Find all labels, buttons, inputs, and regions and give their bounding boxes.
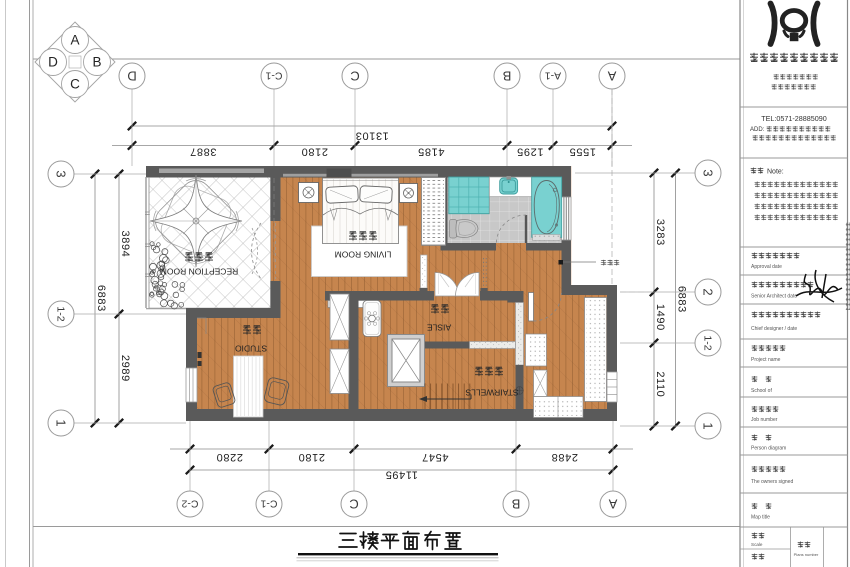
- svg-text:2280: 2280: [216, 451, 243, 463]
- svg-text:A: A: [607, 69, 616, 84]
- svg-text:C: C: [349, 497, 358, 512]
- svg-text:C: C: [70, 77, 80, 92]
- svg-text:2488: 2488: [551, 451, 578, 463]
- svg-text:B: B: [503, 69, 512, 84]
- svg-text:A: A: [70, 33, 79, 48]
- svg-text:2180: 2180: [298, 451, 325, 463]
- svg-text:RECEPTION ROOM: RECEPTION ROOM: [160, 267, 238, 277]
- svg-text:1: 1: [701, 422, 716, 429]
- svg-text:4547: 4547: [422, 451, 449, 463]
- svg-text:1-2: 1-2: [54, 306, 66, 321]
- svg-text:Person diagram: Person diagram: [751, 446, 786, 452]
- svg-text:STAIRWELLS: STAIRWELLS: [465, 388, 518, 398]
- svg-text:3: 3: [54, 170, 69, 177]
- svg-text:Map title: Map title: [751, 515, 770, 521]
- svg-text:C: C: [350, 69, 359, 84]
- svg-text:D: D: [48, 55, 58, 70]
- svg-text:Job number: Job number: [751, 417, 778, 423]
- svg-text:Approval date: Approval date: [751, 264, 782, 270]
- svg-text:Senior Architect date: Senior Architect date: [751, 294, 797, 300]
- svg-text:2: 2: [701, 288, 716, 295]
- svg-text:2989: 2989: [119, 355, 131, 382]
- svg-text:Chief designer / date: Chief designer / date: [751, 326, 797, 332]
- svg-text:2110: 2110: [654, 371, 666, 397]
- svg-text:6883: 6883: [95, 285, 107, 312]
- svg-text:13103: 13103: [355, 130, 389, 142]
- svg-text:1295: 1295: [517, 146, 544, 158]
- svg-text:Note:: Note:: [767, 169, 784, 176]
- svg-text:C-1: C-1: [260, 497, 277, 509]
- svg-text:ADD:: ADD:: [750, 127, 765, 133]
- svg-text:Plans number: Plans number: [794, 552, 819, 557]
- svg-text:AISLE: AISLE: [427, 322, 451, 332]
- svg-text:11495: 11495: [385, 469, 418, 481]
- svg-text:The owners signed: The owners signed: [751, 479, 793, 485]
- svg-text:C-2: C-2: [181, 497, 198, 509]
- svg-text:Project name: Project name: [751, 357, 781, 363]
- svg-text:D: D: [127, 69, 136, 84]
- svg-text:3887: 3887: [190, 146, 217, 158]
- svg-text:School of: School of: [751, 388, 772, 394]
- svg-text:1490: 1490: [654, 304, 666, 331]
- svg-text:B: B: [92, 55, 101, 70]
- svg-text:3: 3: [701, 169, 716, 176]
- svg-text:A-1: A-1: [545, 69, 562, 81]
- svg-text:1: 1: [54, 419, 69, 426]
- svg-text:1-2: 1-2: [701, 335, 713, 350]
- svg-text:STUDIO: STUDIO: [235, 343, 268, 353]
- svg-text:3894: 3894: [119, 231, 131, 258]
- svg-text:Scale: Scale: [751, 542, 763, 547]
- svg-text:1555: 1555: [569, 146, 596, 158]
- svg-text:2180: 2180: [301, 146, 328, 158]
- svg-text:6883: 6883: [675, 286, 687, 313]
- svg-text:4185: 4185: [418, 146, 445, 158]
- svg-text:C-1: C-1: [265, 69, 282, 81]
- svg-text:LIVING ROOM: LIVING ROOM: [335, 250, 392, 260]
- svg-text:TEL:0571-28885090: TEL:0571-28885090: [761, 114, 827, 123]
- svg-text:B: B: [512, 497, 521, 512]
- svg-text:A: A: [608, 497, 617, 512]
- svg-text:3283: 3283: [654, 219, 666, 246]
